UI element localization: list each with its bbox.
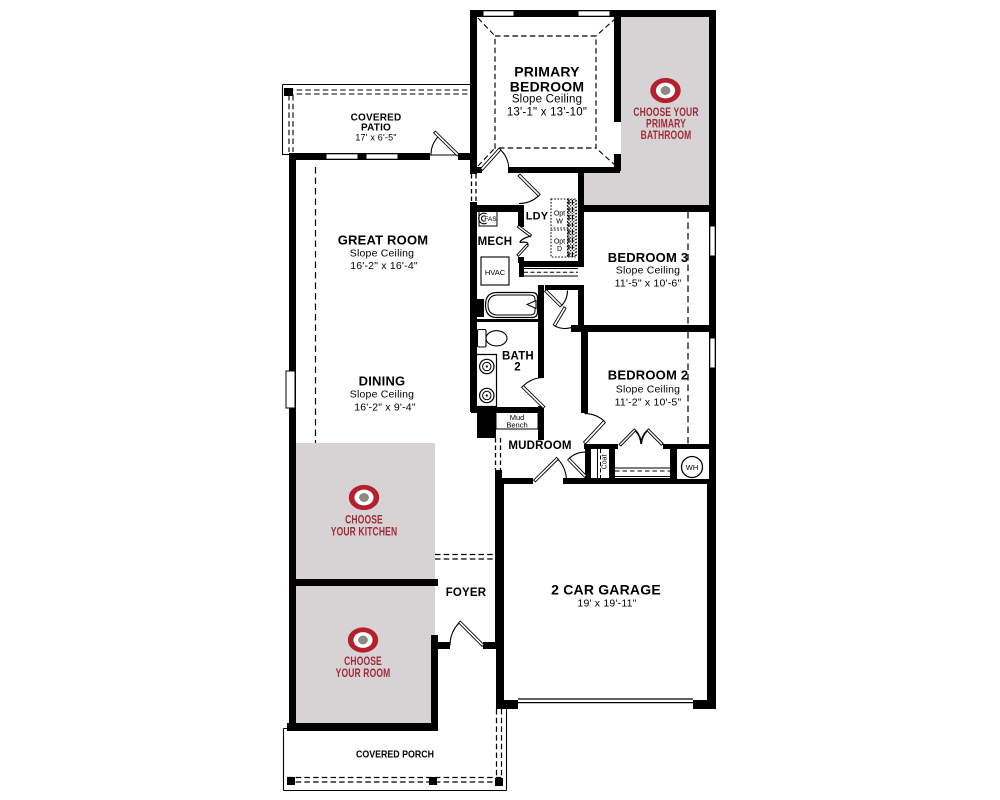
svg-text:HVAC: HVAC [485, 268, 506, 277]
svg-text:BATHROOM: BATHROOM [641, 130, 692, 143]
svg-text:2: 2 [514, 362, 521, 374]
svg-text:16'-2" x 16'-4": 16'-2" x 16'-4" [350, 260, 418, 272]
svg-text:17' x 6'-5": 17' x 6'-5" [355, 133, 396, 143]
svg-text:Slope Ceiling: Slope Ceiling [350, 389, 414, 401]
svg-text:19' x 19'-11": 19' x 19'-11" [577, 598, 636, 610]
svg-text:D: D [557, 246, 562, 253]
svg-text:MUDROOM: MUDROOM [508, 440, 571, 452]
svg-text:Opt: Opt [554, 211, 565, 218]
svg-text:GREAT ROOM: GREAT ROOM [338, 233, 429, 248]
svg-text:FAS: FAS [484, 216, 497, 223]
svg-text:11'-2" x 10'-5": 11'-2" x 10'-5" [615, 397, 682, 409]
svg-text:PRIMARY: PRIMARY [514, 64, 580, 80]
svg-text:Opt: Opt [554, 239, 565, 246]
svg-text:Slope Ceiling: Slope Ceiling [616, 384, 680, 396]
svg-text:Bench: Bench [506, 421, 527, 430]
svg-text:DINING: DINING [359, 374, 406, 389]
svg-text:CHOOSE: CHOOSE [344, 656, 382, 669]
svg-text:MECH: MECH [478, 236, 513, 248]
svg-text:16'-2" x 9'-4": 16'-2" x 9'-4" [354, 402, 416, 414]
svg-text:CHOOSE: CHOOSE [345, 514, 383, 527]
svg-text:Slope Ceiling: Slope Ceiling [512, 94, 582, 106]
svg-text:Slope Ceiling: Slope Ceiling [616, 265, 680, 277]
svg-text:Slope Ceiling: Slope Ceiling [350, 248, 414, 260]
svg-text:13'-1" x 13'-10": 13'-1" x 13'-10" [507, 107, 587, 119]
svg-text:BEDROOM 3: BEDROOM 3 [608, 250, 689, 265]
svg-text:LDY: LDY [526, 211, 549, 223]
svg-text:W: W [556, 219, 563, 226]
svg-text:11'-5" x 10'-6": 11'-5" x 10'-6" [615, 278, 682, 290]
svg-text:COVERED PORCH: COVERED PORCH [356, 749, 434, 761]
svg-text:Coat: Coat [602, 455, 609, 470]
svg-text:WH: WH [686, 463, 699, 472]
svg-text:FOYER: FOYER [446, 587, 487, 599]
svg-text:YOUR KITCHEN: YOUR KITCHEN [331, 526, 398, 539]
svg-text:2 CAR GARAGE: 2 CAR GARAGE [551, 582, 661, 598]
svg-text:BEDROOM: BEDROOM [510, 79, 585, 95]
svg-text:YOUR ROOM: YOUR ROOM [336, 668, 391, 681]
svg-text:BEDROOM 2: BEDROOM 2 [608, 368, 689, 383]
